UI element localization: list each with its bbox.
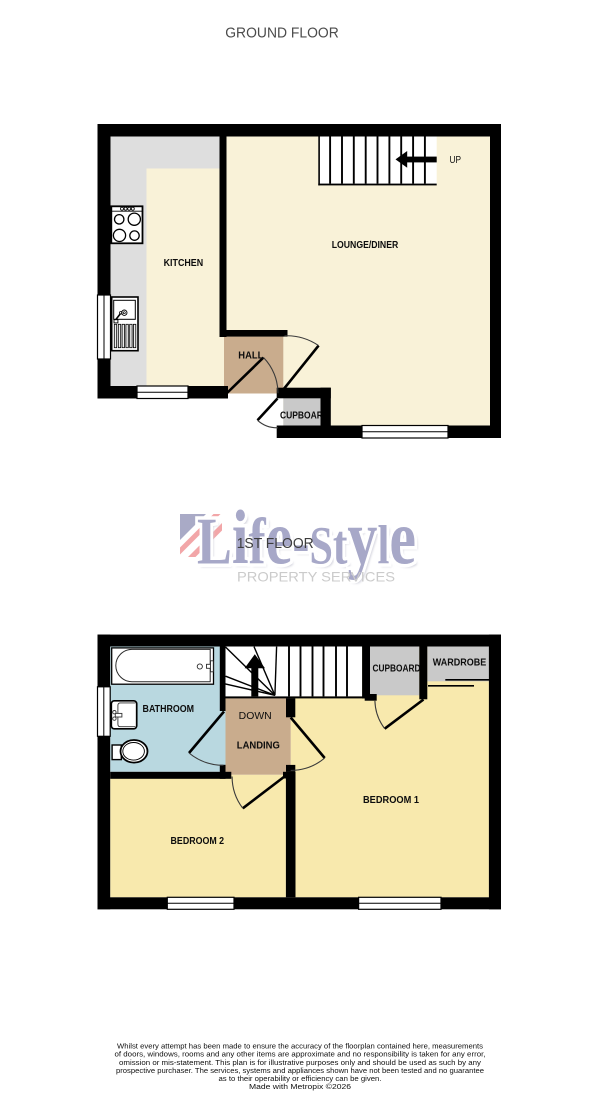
svg-text:BEDROOM 2: BEDROOM 2 [171, 836, 225, 847]
svg-text:BATHROOM: BATHROOM [143, 704, 195, 715]
svg-text:HALL: HALL [238, 351, 263, 362]
svg-text:LOUNGE/DINER: LOUNGE/DINER [332, 240, 399, 251]
svg-text:WARDROBE: WARDROBE [433, 658, 487, 669]
svg-text:CUPBOARD: CUPBOARD [373, 664, 421, 675]
svg-text:PROPERTY SERVICES: PROPERTY SERVICES [237, 569, 395, 585]
svg-text:DOWN: DOWN [239, 711, 272, 722]
svg-text:GROUND FLOOR: GROUND FLOOR [225, 25, 339, 42]
svg-text:1ST FLOOR: 1ST FLOOR [237, 535, 314, 552]
svg-text:KITCHEN: KITCHEN [164, 258, 204, 269]
svg-text:LANDING: LANDING [237, 741, 280, 752]
svg-text:Made with Metropix ©2026: Made with Metropix ©2026 [249, 1082, 351, 1091]
svg-text:UP: UP [450, 155, 462, 166]
svg-text:BEDROOM 1: BEDROOM 1 [363, 795, 419, 806]
